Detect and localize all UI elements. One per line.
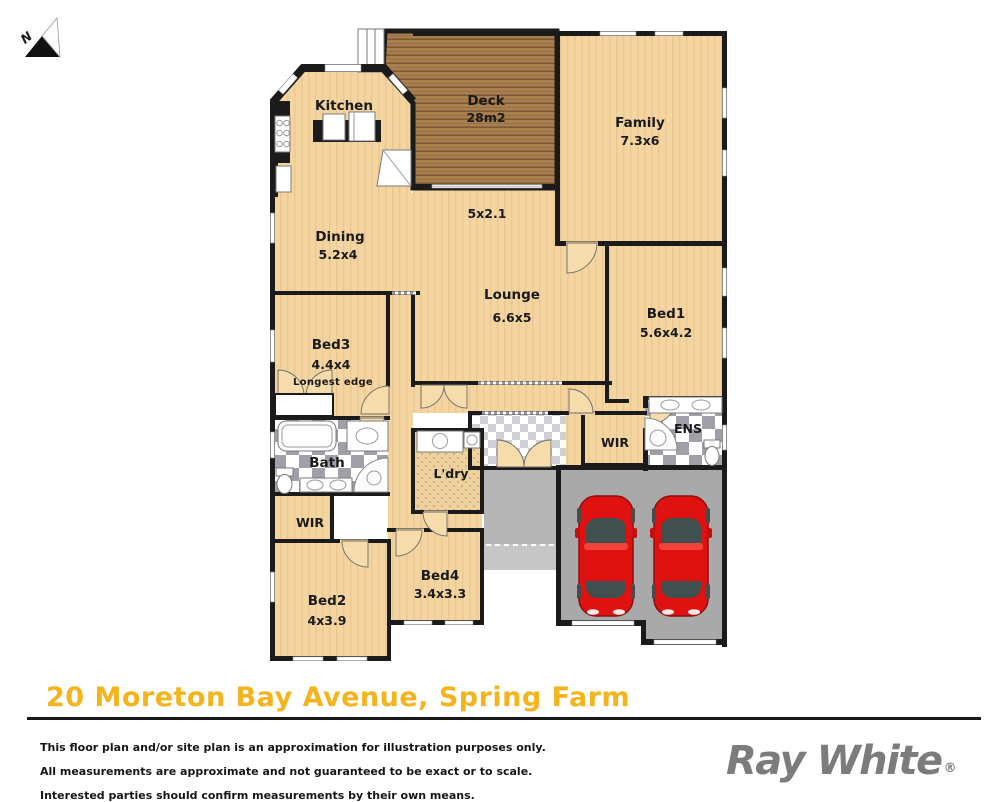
washing-machine — [464, 432, 480, 448]
stove — [275, 116, 290, 152]
room-dim-bed3: 4.4x4 — [312, 357, 351, 372]
room-label-family: Family — [615, 115, 665, 131]
garage-door-right — [654, 640, 716, 645]
room-label-bed3: Bed3 — [312, 337, 351, 353]
room-dim-family: 7.3x6 — [621, 133, 660, 148]
room-dim-bed1: 5.6x4.2 — [640, 325, 692, 340]
ray-white-logo: Ray White® — [726, 738, 986, 784]
north-label: N — [17, 28, 35, 47]
kitchen-cabinet — [276, 166, 291, 192]
divider-line — [27, 717, 981, 720]
room-dim-bed2: 4x3.9 — [308, 613, 347, 628]
car-icon-left — [575, 496, 637, 616]
room-dim-lounge: 6.6x5 — [493, 310, 532, 325]
room-label-bed1: Bed1 — [647, 306, 686, 322]
room-dim-deck: 28m2 — [466, 110, 505, 125]
north-arrow-icon: N — [17, 18, 60, 57]
kitchen-pantry — [377, 150, 411, 186]
room-label-dining: Dining — [315, 229, 364, 245]
room-note-bed3: Longest edge — [293, 377, 373, 388]
room-label-bed4: Bed4 — [421, 568, 460, 584]
room-label-kitchen: Kitchen — [315, 98, 373, 114]
room-label-deck: Deck — [467, 93, 505, 109]
bath-vanity — [300, 478, 352, 492]
disclaimer-line-1: This floor plan and/or site plan is an a… — [40, 741, 546, 754]
room-label-laundry: L'dry — [433, 466, 468, 481]
address-title: 20 Moreton Bay Avenue, Spring Farm — [46, 682, 630, 713]
room-dim-dining: 5.2x4 — [319, 247, 358, 262]
disclaimer-line-2: All measurements are approximate and not… — [40, 765, 532, 778]
room-label-bath: Bath — [309, 455, 344, 471]
brand-name: Ray White — [726, 738, 942, 784]
room-dim-hall: 5x2.1 — [468, 206, 507, 221]
porch — [484, 468, 558, 544]
ens-toilet — [704, 440, 720, 466]
garage-door-left — [572, 621, 634, 626]
room-label-wir-right: WIR — [601, 435, 629, 450]
ens-vanity — [649, 397, 722, 413]
laundry-tub — [417, 431, 463, 452]
room-label-bed2: Bed2 — [308, 593, 347, 609]
room-label-lounge: Lounge — [484, 287, 540, 303]
room-dim-bed4: 3.4x3.3 — [414, 586, 466, 601]
bathtub — [278, 421, 336, 451]
car-icon-right — [650, 496, 712, 616]
floor-plan-drawing: N — [0, 0, 1000, 680]
disclaimer-line-3: Interested parties should confirm measur… — [40, 789, 475, 802]
bath-basin — [347, 421, 388, 451]
porch-step — [484, 544, 558, 570]
room-label-wir-left: WIR — [296, 515, 324, 530]
bath-toilet — [276, 468, 293, 494]
bed3-robe — [275, 394, 333, 416]
room-label-ens: ENS — [674, 421, 702, 436]
registered-mark: ® — [944, 761, 957, 776]
